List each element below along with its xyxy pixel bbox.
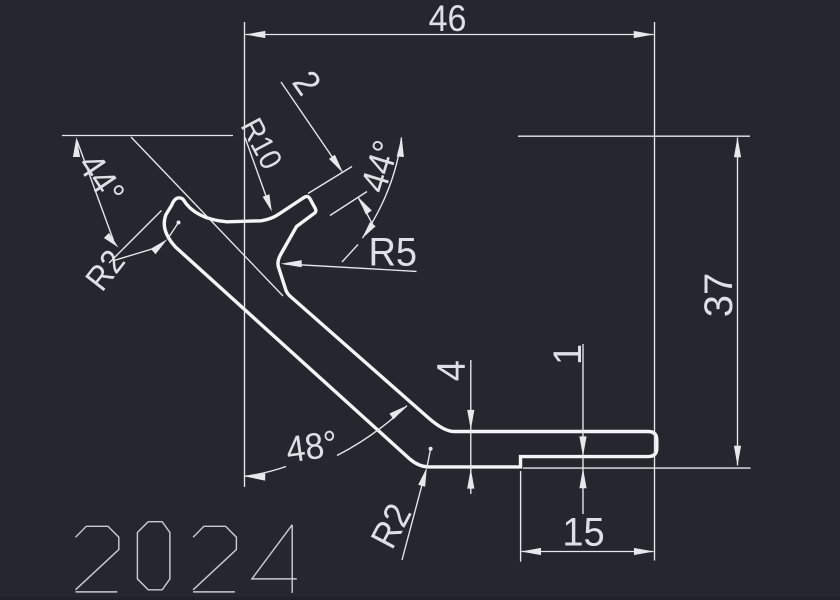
svg-text:37: 37 bbox=[697, 273, 741, 318]
svg-text:R5: R5 bbox=[369, 231, 418, 275]
svg-text:1: 1 bbox=[546, 344, 590, 365]
svg-text:48°: 48° bbox=[283, 422, 340, 470]
svg-text:15: 15 bbox=[562, 511, 604, 555]
svg-text:4: 4 bbox=[430, 360, 474, 381]
svg-text:46: 46 bbox=[429, 0, 467, 39]
